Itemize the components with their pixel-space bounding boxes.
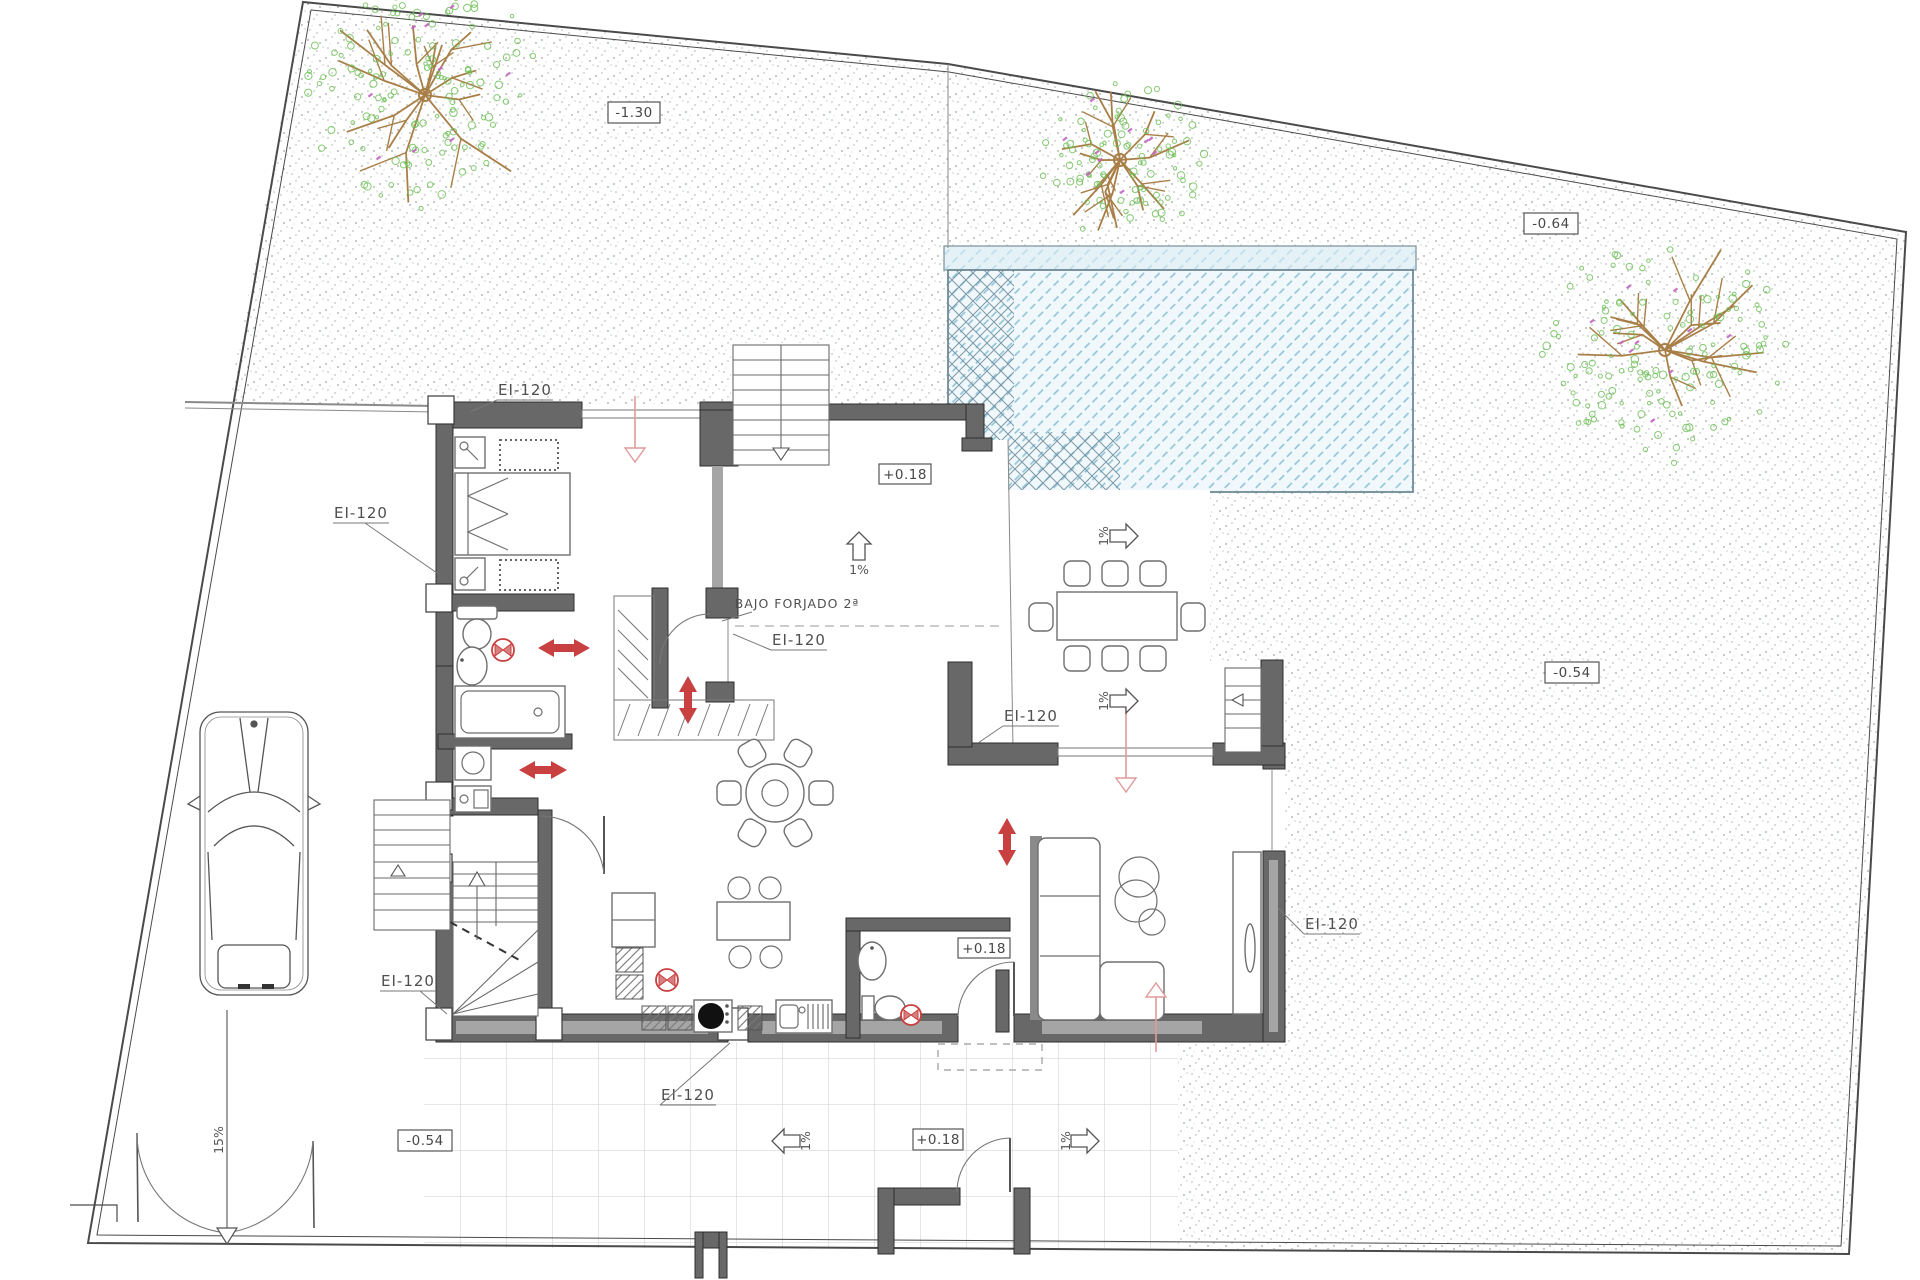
fire-label-text: EI-120: [381, 972, 435, 990]
floor-plan-canvas: 1% 1% 1% 1% 1% 15% BAJO FORJADO 2ª: [0, 0, 1920, 1280]
wc-toilet-tank: [862, 996, 874, 1020]
wall-stair-east: [538, 810, 552, 1016]
garden-fence-lower: [185, 408, 436, 412]
level-text: -0.54: [1553, 665, 1590, 681]
wall-hall-east-post: [706, 682, 734, 702]
car: [188, 712, 320, 995]
slope-driveway: 15%: [211, 1010, 237, 1244]
bath-sink-tap: [460, 658, 464, 662]
fire-label-text: EI-120: [1305, 915, 1359, 933]
level-garden-northeast: -0.64: [1524, 213, 1578, 234]
outdoor-chair-b3: [1140, 646, 1166, 671]
window-bedroom-north: [582, 410, 700, 418]
wall-gate-post-r: [719, 1232, 727, 1278]
fan-symbol-wc: [901, 1005, 921, 1025]
pillar-stair: [536, 1008, 562, 1040]
counter-hatch-5: [738, 1006, 762, 1030]
stove-knob-2: [725, 1012, 729, 1016]
slope-patio-east-label: 1%: [1058, 1131, 1073, 1151]
toilet-bowl: [463, 619, 491, 649]
level-porch-south: +0.18: [913, 1129, 963, 1150]
toilet-tank: [457, 606, 497, 619]
stove-burner: [698, 1003, 724, 1029]
fire-label-text: EI-120: [334, 504, 388, 522]
car-mirror-left: [188, 796, 200, 810]
counter-hatch-2: [616, 975, 643, 999]
slope-deck-label: 1%: [849, 562, 869, 577]
counter-hatch-4: [668, 1006, 692, 1030]
wall-deck-stub: [948, 662, 972, 747]
wall-east-living-stripe: [1269, 860, 1278, 1032]
level-text: +0.18: [883, 467, 927, 483]
wall-porch-east: [1014, 1188, 1030, 1254]
outdoor-chair-t3: [1140, 561, 1166, 586]
bajo-forjado-text: BAJO FORJADO 2ª: [735, 596, 860, 611]
level-text: -1.30: [615, 105, 652, 121]
window-south-living: [1042, 1021, 1202, 1034]
outdoor-table: [1057, 592, 1177, 640]
outdoor-chair-t1: [1064, 561, 1090, 586]
level-text: -0.54: [406, 1133, 443, 1149]
washer: [455, 746, 491, 780]
fire-label-text: EI-120: [772, 631, 826, 649]
wall-wc-west: [846, 918, 860, 1038]
level-garden-east: -0.54: [1545, 662, 1599, 683]
fire-label-text: EI-120: [1004, 707, 1058, 725]
wall-porch-west-v: [878, 1188, 894, 1254]
outdoor-chair-b1: [1064, 646, 1090, 671]
entrance-steps-west: [374, 800, 450, 930]
sofa-vertical: [1038, 838, 1100, 1020]
pillar-sw: [426, 1008, 452, 1040]
laundry-furniture: [455, 746, 491, 812]
level-text: -0.64: [1532, 216, 1569, 232]
round-table-chair-1: [809, 781, 833, 805]
wall-garden-steps: [1261, 660, 1283, 746]
wall-deck-west-thin: [712, 466, 723, 590]
slope-patio-west-label: 1%: [798, 1131, 813, 1151]
pillar-nw: [428, 396, 454, 424]
outdoor-chair-right: [1181, 603, 1205, 631]
slope-dining-south-label: 1%: [1096, 691, 1111, 711]
level-text: +0.18: [962, 941, 1006, 957]
outdoor-chair-left: [1029, 603, 1053, 631]
interior-stair: [450, 862, 538, 1016]
stove-knob-3: [725, 1020, 729, 1024]
round-table-chair-4: [717, 781, 741, 805]
car-body: [200, 712, 308, 995]
bath-sink: [457, 647, 487, 685]
floor-plan-page: 1% 1% 1% 1% 1% 15% BAJO FORJADO 2ª: [0, 0, 1920, 1280]
fire-label-text: EI-120: [661, 1086, 715, 1104]
counter-hatch-3: [642, 1006, 666, 1030]
stove-knob-1: [725, 1004, 729, 1008]
round-table: [746, 764, 804, 822]
level-text: +0.18: [916, 1132, 960, 1148]
car-plate-left: [238, 984, 250, 989]
car-badge: [251, 721, 257, 727]
exterior-stair-north: [733, 345, 829, 465]
swimming-pool: [944, 246, 1416, 492]
wall-hall-east-block: [706, 588, 738, 618]
level-wc-terrace: +0.18: [958, 938, 1010, 958]
wall-wc-east: [996, 970, 1009, 1032]
counter-hatch-1: [616, 948, 643, 972]
fan-symbol-bathroom: [492, 639, 514, 661]
outdoor-chair-t2: [1102, 561, 1128, 586]
level-driveway: -0.54: [398, 1130, 452, 1151]
wall-west-upper: [436, 402, 453, 666]
slope-dining-north-label: 1%: [1096, 526, 1111, 546]
fire-label-west: EI-120: [333, 504, 437, 573]
pool-deck-hatch: [944, 246, 1416, 270]
window-living-north: [1058, 748, 1213, 756]
wc-sink-tap: [870, 946, 874, 950]
car-plate-right: [262, 984, 274, 989]
nightstand-bottom: [455, 558, 485, 590]
tv-screen: [1245, 924, 1255, 972]
wall-gate-post-l: [695, 1232, 703, 1278]
bed: [455, 473, 570, 555]
kitchen-table: [717, 902, 790, 940]
wall-wc-north: [846, 918, 1010, 931]
fan-symbol-kitchen: [656, 969, 678, 991]
level-garden-northwest: -1.30: [608, 102, 660, 123]
level-deck-north: +0.18: [879, 464, 931, 484]
outdoor-chair-b2: [1102, 646, 1128, 671]
garden-steps-east: [1225, 668, 1261, 752]
pillar-w1: [426, 584, 452, 612]
wall-deck-jog-h: [962, 438, 992, 451]
wall-bedroom-north: [436, 402, 582, 428]
wall-deck-west-block: [700, 410, 738, 466]
bathtub: [455, 686, 565, 738]
slope-driveway-label: 15%: [211, 1126, 226, 1154]
fire-label-text: EI-120: [498, 381, 552, 399]
wall-deck-north: [828, 404, 968, 420]
car-mirror-right: [308, 796, 320, 810]
